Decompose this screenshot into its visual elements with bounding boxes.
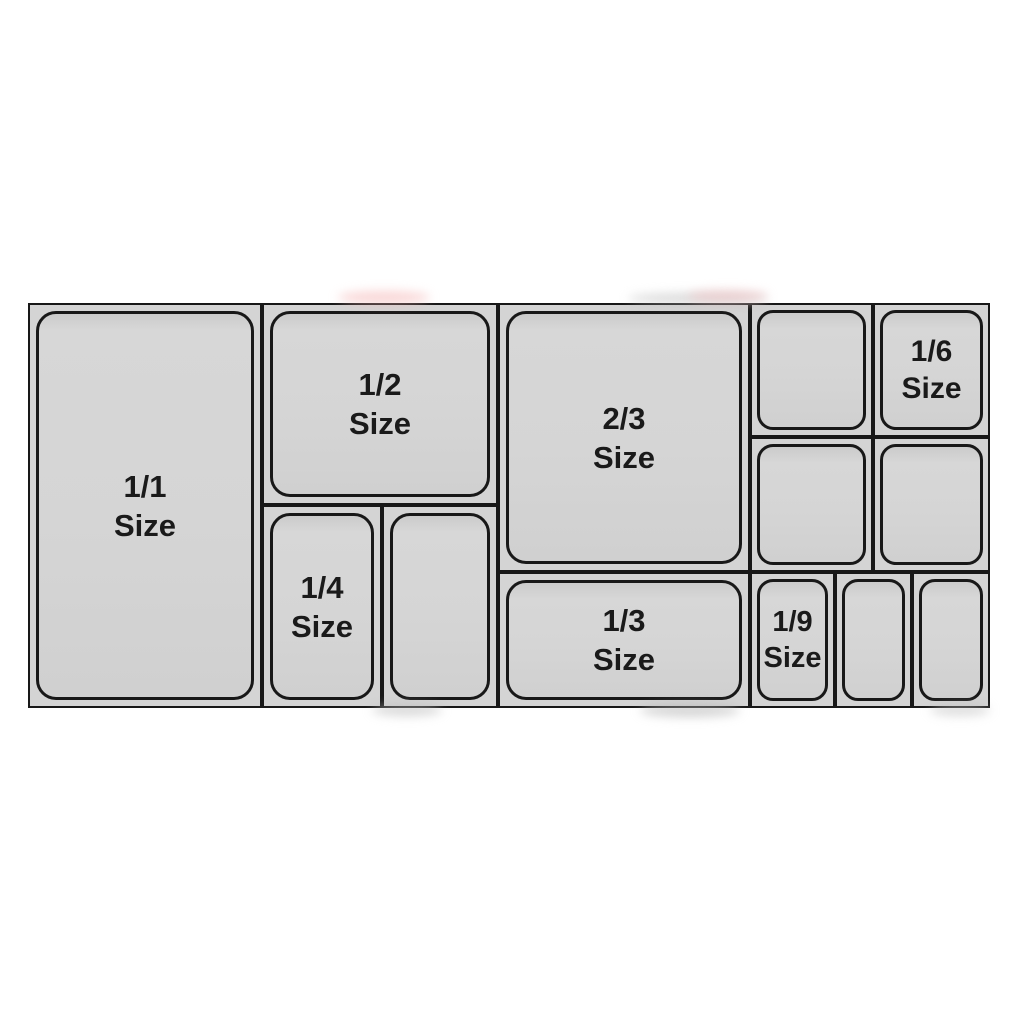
pan-label-fraction: 1/2 xyxy=(358,365,401,404)
pan-1-9-blank xyxy=(919,579,983,701)
pan-cell-1-9-unlabeled-right xyxy=(912,572,990,708)
pan-label-size: Size xyxy=(901,370,961,407)
pan-cell-1-6-labeled: 1/6 Size xyxy=(873,303,990,437)
pan-cell-1-1: 1/1 Size xyxy=(28,303,262,708)
pan-cell-1-6-unlabeled-top-left xyxy=(750,303,873,437)
pan-label-fraction: 1/1 xyxy=(123,467,166,506)
pan-label-size: Size xyxy=(291,607,353,646)
pan-1-4-blank xyxy=(390,513,490,700)
pan-1-1: 1/1 Size xyxy=(36,311,254,700)
pan-label-size: Size xyxy=(763,640,821,676)
pan-label-fraction: 2/3 xyxy=(602,399,645,438)
pan-label-fraction: 1/6 xyxy=(911,333,953,370)
pan-1-6-blank xyxy=(757,310,866,430)
pan-1-6-blank xyxy=(757,444,866,565)
pan-cell-1-4-unlabeled xyxy=(382,505,498,708)
pan-1-9-blank xyxy=(842,579,905,701)
pan-1-6: 1/6 Size xyxy=(880,310,983,430)
pan-label-fraction: 1/3 xyxy=(602,601,645,640)
pan-1-3: 1/3 Size xyxy=(506,580,742,700)
pan-label-size: Size xyxy=(114,506,176,545)
pan-label-fraction: 1/4 xyxy=(300,568,343,607)
pan-1-2: 1/2 Size xyxy=(270,311,490,497)
pan-label-fraction: 1/9 xyxy=(772,604,812,640)
pan-label-size: Size xyxy=(593,640,655,679)
pan-cell-1-3: 1/3 Size xyxy=(498,572,750,708)
artifact-smudge xyxy=(688,290,768,302)
pan-2-3: 2/3 Size xyxy=(506,311,742,564)
pan-label-size: Size xyxy=(349,404,411,443)
pan-cell-1-9-unlabeled-middle xyxy=(835,572,912,708)
pan-cell-1-2: 1/2 Size xyxy=(262,303,498,505)
gastronorm-pan-size-diagram: 1/1 Size 1/2 Size 1/4 Size 2/3 Size xyxy=(0,0,1024,1024)
pan-label-size: Size xyxy=(593,438,655,477)
pan-cell-1-9-labeled: 1/9 Size xyxy=(750,572,835,708)
pan-cell-2-3: 2/3 Size xyxy=(498,303,750,572)
pan-1-4: 1/4 Size xyxy=(270,513,374,700)
pan-cell-1-6-unlabeled-mid-left xyxy=(750,437,873,572)
pan-cell-1-6-unlabeled-mid-right xyxy=(873,437,990,572)
pan-cell-1-4-labeled: 1/4 Size xyxy=(262,505,382,708)
pan-1-9: 1/9 Size xyxy=(757,579,828,701)
pan-1-6-blank xyxy=(880,444,983,565)
pan-grid: 1/1 Size 1/2 Size 1/4 Size 2/3 Size xyxy=(28,303,990,708)
